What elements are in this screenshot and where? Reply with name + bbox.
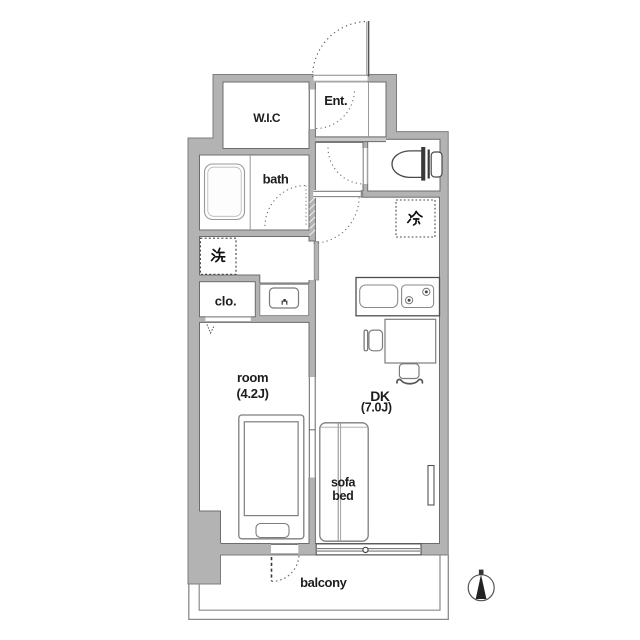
svg-text:W.I.C: W.I.C xyxy=(253,111,281,125)
svg-text:bed: bed xyxy=(332,489,353,503)
svg-text:(7.0J): (7.0J) xyxy=(361,401,392,415)
svg-text:(4.2J): (4.2J) xyxy=(237,386,269,401)
svg-text:bath: bath xyxy=(263,172,289,187)
svg-text:Ent.: Ent. xyxy=(324,93,347,108)
svg-text:room: room xyxy=(237,370,268,385)
svg-text:clo.: clo. xyxy=(215,294,237,309)
svg-text:sofa: sofa xyxy=(331,475,357,489)
svg-text:balcony: balcony xyxy=(300,575,347,590)
